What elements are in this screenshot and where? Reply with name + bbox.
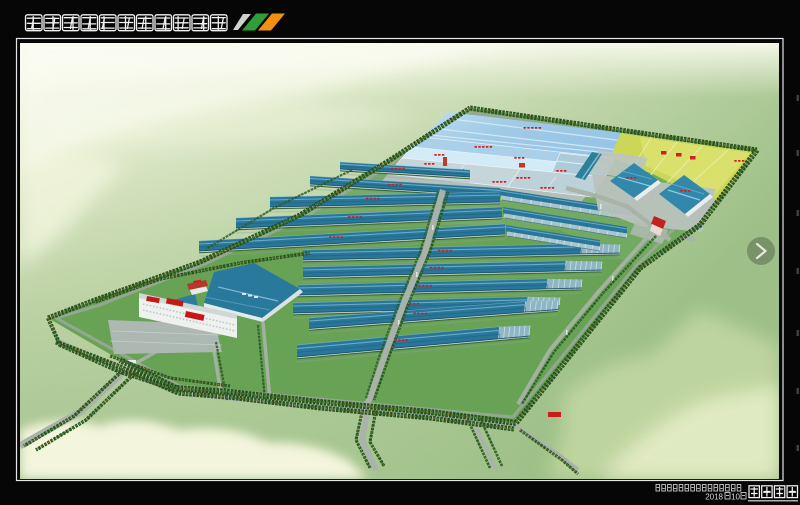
svg-text:2018: 2018 <box>705 493 723 502</box>
svg-text:10: 10 <box>731 493 740 502</box>
